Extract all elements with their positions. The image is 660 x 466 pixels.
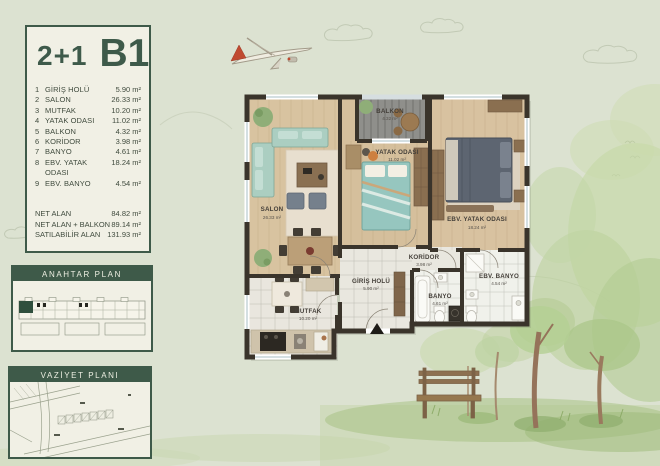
room-number: 2 <box>35 95 45 105</box>
key-plan-title: ANAHTAR PLAN <box>13 267 151 281</box>
label-koridor-area: 3.98 m² <box>416 262 432 267</box>
label-yatak-odasi: YATAK ODASI <box>375 149 418 156</box>
room-area: 5.90 m² <box>116 85 141 95</box>
label-ebv-banyo-area: 4.54 m² <box>491 281 507 286</box>
brochure-page: SALON 26.33 m² BALKON 4.32 m² YATAK ODAS… <box>0 0 660 466</box>
site-plan-title: VAZİYET PLANI <box>10 368 150 382</box>
room-area: 4.54 m² <box>116 179 141 189</box>
label-banyo: BANYO <box>428 293 451 300</box>
room-number: 3 <box>35 106 45 116</box>
room-name: EBV. BANYO <box>45 179 116 189</box>
room-number: 8 <box>35 158 45 179</box>
room-area: 18.24 m² <box>111 158 141 179</box>
total-row: SATILABİLİR ALAN131.93 m² <box>35 230 141 241</box>
label-balkon: BALKON <box>376 108 404 115</box>
room-number: 4 <box>35 116 45 126</box>
total-value: 89.14 m² <box>111 220 141 231</box>
total-name: NET ALAN + BALKON <box>35 220 111 231</box>
site-plan-drawing <box>10 382 150 457</box>
label-banyo-area: 4.61 m² <box>432 301 448 306</box>
unit-title: 2+1 B1 <box>37 35 141 73</box>
room-area: 10.20 m² <box>111 106 141 116</box>
total-row: NET ALAN84.82 m² <box>35 209 141 220</box>
room-row: 1GİRİŞ HOLÜ5.90 m² <box>35 85 141 95</box>
label-salon: SALON <box>261 206 284 213</box>
label-mutfak: MUTFAK <box>295 308 322 315</box>
total-name: NET ALAN <box>35 209 111 220</box>
room-number: 5 <box>35 127 45 137</box>
label-giris-holu-area: 5.90 m² <box>363 286 379 291</box>
room-row: 8EBV. YATAK ODASI18.24 m² <box>35 158 141 179</box>
key-plan-map <box>13 281 151 350</box>
room-name: BANYO <box>45 147 116 157</box>
total-value: 84.82 m² <box>111 209 141 220</box>
room-area: 26.33 m² <box>111 95 141 105</box>
room-name: GİRİŞ HOLÜ <box>45 85 116 95</box>
unit-type-label: 2+1 <box>37 39 88 73</box>
room-row: 6KORİDOR3.98 m² <box>35 137 141 147</box>
total-name: SATILABİLİR ALAN <box>35 230 107 241</box>
room-row: 2SALON26.33 m² <box>35 95 141 105</box>
label-ebv-yatak: EBV. YATAK ODASI <box>447 216 507 223</box>
site-plan-map <box>10 382 150 457</box>
area-totals: NET ALAN84.82 m² NET ALAN + BALKON89.14 … <box>35 209 141 241</box>
room-name: BALKON <box>45 127 116 137</box>
label-ebv-yatak-area: 18.24 m² <box>468 225 487 230</box>
key-plan-highlighted-unit <box>19 301 33 313</box>
room-name: SALON <box>45 95 111 105</box>
room-area: 11.02 m² <box>112 116 141 126</box>
room-name: MUTFAK <box>45 106 111 116</box>
label-ebv-banyo: EBV. BANYO <box>479 273 519 280</box>
room-area: 4.61 m² <box>116 147 141 157</box>
unit-info-panel: 2+1 B1 1GİRİŞ HOLÜ5.90 m² 2SALON26.33 m²… <box>25 25 151 253</box>
room-area: 4.32 m² <box>116 127 141 137</box>
label-salon-area: 26.33 m² <box>263 215 282 220</box>
room-row: 5BALKON4.32 m² <box>35 127 141 137</box>
label-giris-holu: GİRİŞ HOLÜ <box>352 278 390 285</box>
room-number: 1 <box>35 85 45 95</box>
label-balkon-area: 4.32 m² <box>382 116 398 121</box>
label-yatak-odasi-area: 11.02 m² <box>388 157 406 162</box>
label-mutfak-area: 10.20 m² <box>299 316 318 321</box>
room-name: YATAK ODASI <box>45 116 112 126</box>
room-row: 7BANYO4.61 m² <box>35 147 141 157</box>
key-plan-drawing <box>13 281 151 350</box>
room-row: 4YATAK ODASI11.02 m² <box>35 116 141 126</box>
unit-block-label: B1 <box>100 35 150 73</box>
room-name: KORİDOR <box>45 137 116 147</box>
label-koridor: KORİDOR <box>409 254 440 261</box>
key-plan-panel: ANAHTAR PLAN <box>11 265 153 352</box>
room-row: 9EBV. BANYO4.54 m² <box>35 179 141 189</box>
total-row: NET ALAN + BALKON89.14 m² <box>35 220 141 231</box>
room-number: 7 <box>35 147 45 157</box>
room-list: 1GİRİŞ HOLÜ5.90 m² 2SALON26.33 m² 3MUTFA… <box>35 85 141 189</box>
room-row: 3MUTFAK10.20 m² <box>35 106 141 116</box>
room-area: 3.98 m² <box>116 137 141 147</box>
room-number: 9 <box>35 179 45 189</box>
site-plan-panel: VAZİYET PLANI <box>8 366 152 459</box>
hall-closet <box>394 272 405 316</box>
floor-plan: SALON 26.33 m² BALKON 4.32 m² YATAK ODAS… <box>245 95 532 362</box>
room-name: EBV. YATAK ODASI <box>45 158 111 179</box>
room-number: 6 <box>35 137 45 147</box>
total-value: 131.93 m² <box>107 230 141 241</box>
